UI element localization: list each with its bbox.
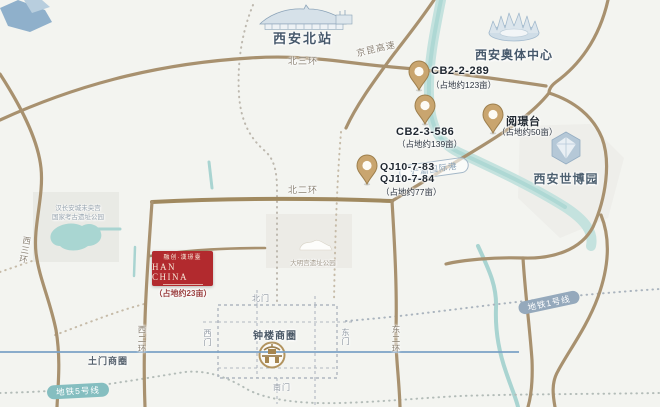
olympic-center-icon xyxy=(489,13,539,41)
north-station-icon xyxy=(260,5,352,30)
north-3rd-ring-label: 北三环 xyxy=(288,54,318,67)
pin-qj10-area: （占地约77亩） xyxy=(381,186,441,198)
road-east-vertical xyxy=(523,258,532,407)
road-north-2nd-ring xyxy=(152,199,392,202)
project-logo-card[interactable]: 融创·漢璟臺 HAN CHINA xyxy=(152,251,213,286)
road-west-2nd-ring xyxy=(144,202,152,407)
pin-yuejingtai-area: （占地约50亩） xyxy=(497,126,557,138)
pin-cb2-3-586-name: CB2-3-586 xyxy=(396,126,454,138)
project-area-label: （占地约23亩） xyxy=(148,288,218,299)
west-2nd-ring-label: 西二环 xyxy=(136,325,148,354)
bell-tower-district-label: 钟楼商圈 xyxy=(240,327,310,342)
gate-south-label: 南门 xyxy=(269,382,295,393)
east-2nd-ring-label: 东二环 xyxy=(390,325,402,354)
hancheng-park-label-line2: 国家考古遗址公园 xyxy=(36,211,120,221)
gate-north-label: 北门 xyxy=(248,293,274,304)
canal-segment-1 xyxy=(209,162,212,188)
expo-park-label: 西安世博园 xyxy=(520,170,612,187)
north-2nd-ring-label: 北二环 xyxy=(288,183,318,196)
river-south-branch xyxy=(478,246,518,407)
pin-cb2-2-289[interactable] xyxy=(408,60,430,92)
gate-west-label: 西门 xyxy=(202,329,213,347)
olympic-center-label: 西安奥体中心 xyxy=(468,46,560,63)
pin-cb2-2-289-area: （占地约123亩） xyxy=(431,79,496,91)
daming-palace-label: 大明宫遗址公园 xyxy=(278,257,348,267)
project-logo-rule xyxy=(163,284,203,285)
project-brand-cn: 融创·漢璟臺 xyxy=(164,252,202,261)
gate-east-label: 东门 xyxy=(340,328,351,346)
project-brand-en: HAN CHINA xyxy=(152,262,213,282)
metro-line1-dotted xyxy=(346,289,660,321)
pin-qj10[interactable] xyxy=(356,154,378,186)
tumen-district-label: 土门商圈 xyxy=(88,354,128,367)
canal-segment-3 xyxy=(134,247,135,276)
pin-cb2-2-289-name: CB2-2-289 xyxy=(431,65,489,77)
pin-qj10-name2: QJ10-7-84 xyxy=(380,173,435,185)
road-east-2nd-ring xyxy=(392,201,400,407)
xian-location-map: 西安北站 西安奥体中心 西安世博园 钟楼商圈 土门商圈 汉长安城未央宫 国家考古… xyxy=(0,0,660,407)
pin-cb2-3-586[interactable] xyxy=(414,94,436,126)
pin-qj10-name1: QJ10-7-83 xyxy=(380,161,435,173)
north-station-label: 西安北站 xyxy=(270,28,336,47)
dotted-segment-southwest xyxy=(55,303,148,335)
pin-cb2-3-586-area: （占地约139亩） xyxy=(397,138,462,150)
